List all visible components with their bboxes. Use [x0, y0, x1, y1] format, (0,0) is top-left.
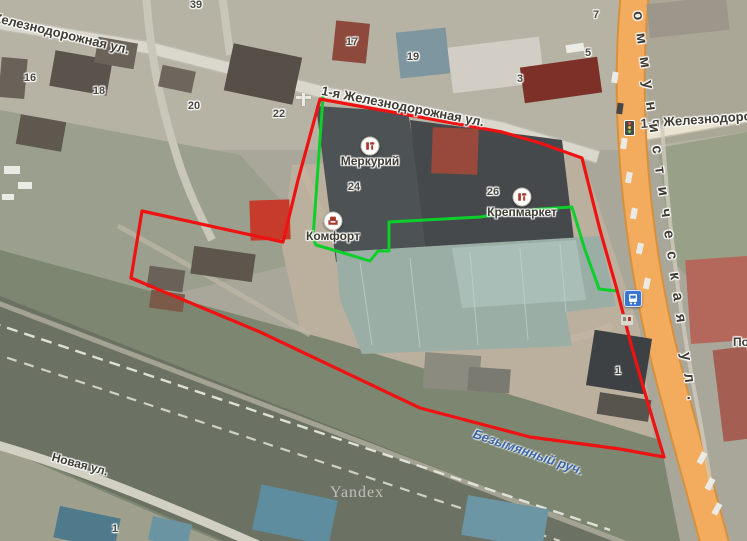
street-label: Железнодорожная ул. [0, 9, 131, 57]
house-number-label: 19 [407, 51, 419, 63]
house-number-label: 1 [615, 365, 621, 377]
house-number-label: 7 [593, 9, 599, 21]
armchair-icon [324, 212, 343, 231]
street-label: 1-я Железнодорожная ул. [320, 83, 485, 129]
label-layer: Yandex Железнодорожная ул.1-я Железнодор… [0, 0, 747, 541]
poi-label: Меркурий [341, 154, 400, 168]
street-label: Новая ул. [50, 450, 109, 478]
house-number-label: 17 [346, 36, 358, 48]
bus-stop-icon[interactable] [624, 290, 642, 307]
furniture-icon [513, 188, 532, 207]
house-number-label: 5 [585, 47, 591, 59]
house-number-label: 39 [190, 0, 202, 11]
street-label: По [733, 335, 747, 349]
poi-label: Комфорт [306, 229, 360, 243]
house-number-label: 20 [188, 100, 200, 112]
house-number-label: 26 [487, 186, 499, 198]
house-number-label: 18 [93, 85, 105, 97]
house-number-label: 1 [112, 523, 118, 535]
house-number-label: 24 [348, 181, 360, 193]
house-number-label: 3 [517, 73, 523, 85]
street-label: Безымянный руч. [471, 426, 585, 478]
traffic-light-icon [624, 120, 635, 136]
map-canvas[interactable]: Yandex Железнодорожная ул.1-я Железнодор… [0, 0, 747, 541]
small-map-icon[interactable] [620, 314, 634, 326]
poi-label: Крепмаркет [487, 205, 557, 219]
map-watermark: Yandex [330, 484, 384, 502]
furniture-icon [361, 137, 380, 156]
house-number-label: 22 [273, 108, 285, 120]
house-number-label: 16 [24, 72, 36, 84]
street-label: Коммунистическая ул. [626, 0, 702, 414]
